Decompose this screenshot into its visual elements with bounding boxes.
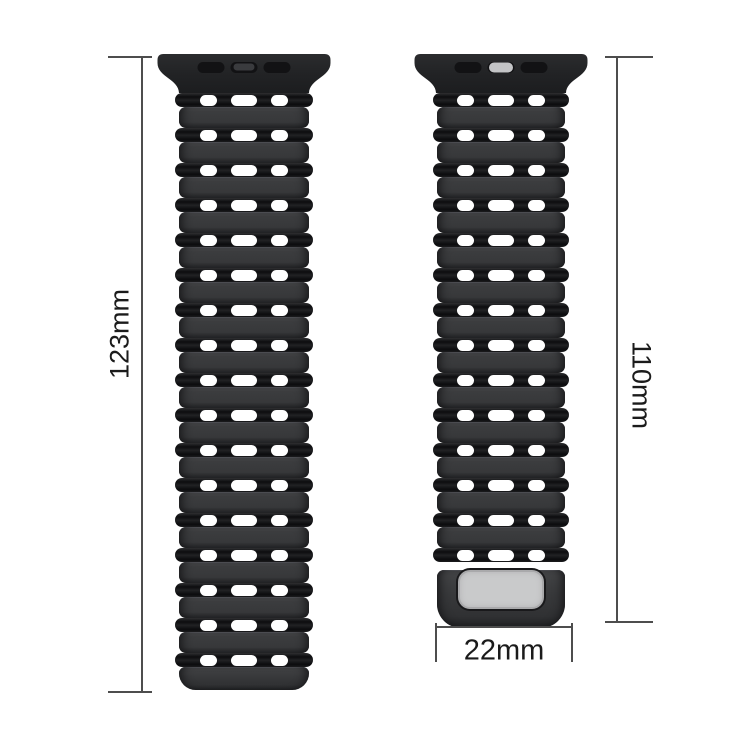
strap-hole bbox=[231, 235, 257, 246]
strap-hole bbox=[528, 95, 545, 106]
strap-segment bbox=[437, 212, 565, 233]
lug-shape bbox=[158, 54, 331, 93]
strap-hole bbox=[200, 620, 217, 631]
dimension-line bbox=[141, 57, 143, 692]
strap-segment bbox=[179, 107, 309, 128]
strap-hole bbox=[271, 550, 288, 561]
strap-segment bbox=[437, 527, 565, 548]
dimension-tick-top bbox=[108, 56, 152, 58]
strap-hole bbox=[271, 480, 288, 491]
strap-hole bbox=[528, 235, 545, 246]
strap-hole bbox=[200, 305, 217, 316]
strap-groove-row bbox=[433, 408, 569, 422]
strap-body-long bbox=[179, 93, 309, 690]
magnetic-buckle-plate bbox=[458, 570, 544, 609]
strap-groove-row bbox=[433, 303, 569, 317]
strap-hole bbox=[528, 340, 545, 351]
strap-hole bbox=[271, 305, 288, 316]
strap-hole bbox=[271, 95, 288, 106]
strap-segment bbox=[179, 212, 309, 233]
strap-segment bbox=[179, 492, 309, 513]
strap-groove-row bbox=[175, 233, 313, 247]
strap-hole bbox=[488, 375, 514, 386]
strap-hole bbox=[271, 340, 288, 351]
strap-hole bbox=[528, 165, 545, 176]
strap-groove-row bbox=[175, 373, 313, 387]
strap-hole bbox=[231, 480, 257, 491]
strap-end-cap bbox=[179, 667, 309, 690]
dimension-label-width: 22mm bbox=[464, 637, 545, 666]
strap-segment bbox=[179, 352, 309, 373]
dimension-tick-top bbox=[605, 56, 653, 58]
strap-hole bbox=[200, 340, 217, 351]
strap-segment bbox=[179, 387, 309, 408]
strap-hole bbox=[271, 200, 288, 211]
strap-hole bbox=[200, 165, 217, 176]
strap-hole bbox=[231, 95, 257, 106]
strap-hole bbox=[231, 655, 257, 666]
strap-segment bbox=[437, 492, 565, 513]
strap-hole bbox=[528, 130, 545, 141]
strap-groove-row bbox=[175, 478, 313, 492]
strap-groove-row bbox=[175, 583, 313, 597]
strap-hole bbox=[271, 445, 288, 456]
strap-hole bbox=[457, 445, 474, 456]
dimension-line bbox=[436, 626, 572, 628]
strap-hole bbox=[200, 235, 217, 246]
strap-hole bbox=[271, 620, 288, 631]
strap-hole bbox=[271, 235, 288, 246]
strap-hole bbox=[231, 550, 257, 561]
strap-hole bbox=[488, 95, 514, 106]
strap-groove-row bbox=[175, 198, 313, 212]
strap-groove-row bbox=[175, 618, 313, 632]
strap-segment bbox=[179, 422, 309, 443]
strap-hole bbox=[528, 375, 545, 386]
strap-hole bbox=[231, 620, 257, 631]
strap-groove-row bbox=[175, 163, 313, 177]
dimension-label-right-length: 110mm bbox=[628, 341, 655, 429]
strap-groove-row bbox=[175, 513, 313, 527]
strap-hole bbox=[457, 305, 474, 316]
strap-hole bbox=[528, 515, 545, 526]
dimension-tick-left bbox=[435, 623, 437, 662]
dimension-label-left-length: 123mm bbox=[107, 289, 134, 379]
strap-groove-row bbox=[175, 268, 313, 282]
strap-groove-row bbox=[433, 373, 569, 387]
strap-groove-row bbox=[433, 93, 569, 107]
watch-lug-connector bbox=[158, 54, 331, 93]
strap-hole bbox=[488, 130, 514, 141]
strap-groove-row bbox=[433, 513, 569, 527]
strap-hole bbox=[200, 550, 217, 561]
strap-hole bbox=[231, 200, 257, 211]
strap-groove-row bbox=[433, 548, 569, 562]
strap-hole bbox=[231, 445, 257, 456]
strap-groove-row bbox=[175, 548, 313, 562]
strap-groove-row bbox=[175, 653, 313, 667]
strap-groove-row bbox=[175, 93, 313, 107]
dimension-tick-bottom bbox=[605, 621, 653, 623]
strap-segment bbox=[437, 142, 565, 163]
strap-hole bbox=[457, 480, 474, 491]
strap-segment bbox=[179, 177, 309, 198]
strap-hole bbox=[200, 270, 217, 281]
strap-groove-row bbox=[175, 408, 313, 422]
strap-hole bbox=[200, 95, 217, 106]
strap-hole bbox=[488, 305, 514, 316]
strap-hole bbox=[457, 200, 474, 211]
strap-hole bbox=[271, 585, 288, 596]
lug-pin-dark bbox=[234, 64, 255, 71]
strap-hole bbox=[488, 200, 514, 211]
lug-shape bbox=[415, 54, 588, 93]
strap-segment bbox=[179, 282, 309, 303]
lug-slot-left bbox=[198, 62, 225, 73]
strap-hole bbox=[457, 95, 474, 106]
strap-groove-row bbox=[433, 268, 569, 282]
strap-hole bbox=[528, 305, 545, 316]
strap-hole bbox=[200, 480, 217, 491]
lug-slot-left bbox=[455, 62, 482, 73]
strap-hole bbox=[488, 340, 514, 351]
strap-groove-row bbox=[433, 478, 569, 492]
strap-hole bbox=[200, 515, 217, 526]
strap-hole bbox=[457, 410, 474, 421]
strap-hole bbox=[457, 165, 474, 176]
strap-hole bbox=[488, 410, 514, 421]
strap-hole bbox=[457, 515, 474, 526]
strap-hole bbox=[231, 165, 257, 176]
strap-hole bbox=[231, 410, 257, 421]
strap-hole bbox=[200, 200, 217, 211]
strap-groove-row bbox=[175, 443, 313, 457]
strap-hole bbox=[271, 410, 288, 421]
strap-groove-row bbox=[175, 338, 313, 352]
strap-hole bbox=[200, 375, 217, 386]
lug-pin-light bbox=[489, 63, 513, 73]
strap-hole bbox=[231, 585, 257, 596]
dimension-tick-right bbox=[571, 623, 573, 662]
strap-hole bbox=[528, 445, 545, 456]
strap-hole bbox=[488, 515, 514, 526]
strap-hole bbox=[231, 305, 257, 316]
strap-segment bbox=[179, 527, 309, 548]
strap-hole bbox=[231, 375, 257, 386]
strap-hole bbox=[271, 270, 288, 281]
strap-segment bbox=[179, 247, 309, 268]
strap-hole bbox=[200, 585, 217, 596]
strap-segment bbox=[437, 247, 565, 268]
strap-hole bbox=[271, 130, 288, 141]
strap-hole bbox=[488, 550, 514, 561]
strap-segment bbox=[437, 177, 565, 198]
strap-segment bbox=[437, 282, 565, 303]
strap-hole bbox=[200, 445, 217, 456]
strap-body-short bbox=[437, 93, 565, 628]
strap-hole bbox=[528, 410, 545, 421]
strap-segment bbox=[437, 107, 565, 128]
strap-hole bbox=[457, 130, 474, 141]
strap-segment bbox=[179, 457, 309, 478]
strap-segment bbox=[179, 632, 309, 653]
strap-hole bbox=[457, 235, 474, 246]
lug-slot-right bbox=[521, 62, 548, 73]
strap-groove-row bbox=[175, 303, 313, 317]
strap-groove-row bbox=[175, 128, 313, 142]
strap-segment bbox=[437, 352, 565, 373]
strap-segment bbox=[179, 142, 309, 163]
strap-hole bbox=[200, 130, 217, 141]
strap-segment bbox=[437, 317, 565, 338]
strap-hole bbox=[200, 410, 217, 421]
lug-slot-right bbox=[264, 62, 291, 73]
strap-segment bbox=[437, 422, 565, 443]
strap-segment bbox=[179, 317, 309, 338]
strap-hole bbox=[528, 270, 545, 281]
strap-groove-row bbox=[433, 443, 569, 457]
strap-segment bbox=[179, 562, 309, 583]
strap-hole bbox=[200, 655, 217, 666]
dimension-tick-bottom bbox=[108, 691, 152, 693]
strap-hole bbox=[271, 515, 288, 526]
strap-hole bbox=[271, 375, 288, 386]
strap-hole bbox=[457, 270, 474, 281]
dimension-line bbox=[616, 57, 618, 623]
product-size-diagram: 123mm 110mm 22mm bbox=[0, 0, 750, 750]
strap-hole bbox=[488, 445, 514, 456]
strap-groove-row bbox=[433, 233, 569, 247]
strap-hole bbox=[271, 655, 288, 666]
strap-hole bbox=[231, 340, 257, 351]
strap-hole bbox=[488, 270, 514, 281]
strap-segment bbox=[179, 597, 309, 618]
strap-end-cap bbox=[437, 570, 565, 628]
strap-hole bbox=[271, 165, 288, 176]
strap-hole bbox=[231, 130, 257, 141]
strap-groove-row bbox=[433, 128, 569, 142]
strap-groove-row bbox=[433, 163, 569, 177]
strap-hole bbox=[488, 480, 514, 491]
strap-hole bbox=[488, 235, 514, 246]
strap-hole bbox=[488, 165, 514, 176]
strap-hole bbox=[528, 200, 545, 211]
strap-groove-row bbox=[433, 338, 569, 352]
watch-lug-connector bbox=[415, 54, 588, 93]
strap-groove-row bbox=[433, 198, 569, 212]
strap-hole bbox=[231, 270, 257, 281]
strap-hole bbox=[231, 515, 257, 526]
strap-hole bbox=[457, 340, 474, 351]
strap-hole bbox=[528, 480, 545, 491]
strap-segment bbox=[437, 387, 565, 408]
strap-hole bbox=[457, 550, 474, 561]
strap-hole bbox=[457, 375, 474, 386]
strap-hole bbox=[528, 550, 545, 561]
strap-segment bbox=[437, 457, 565, 478]
